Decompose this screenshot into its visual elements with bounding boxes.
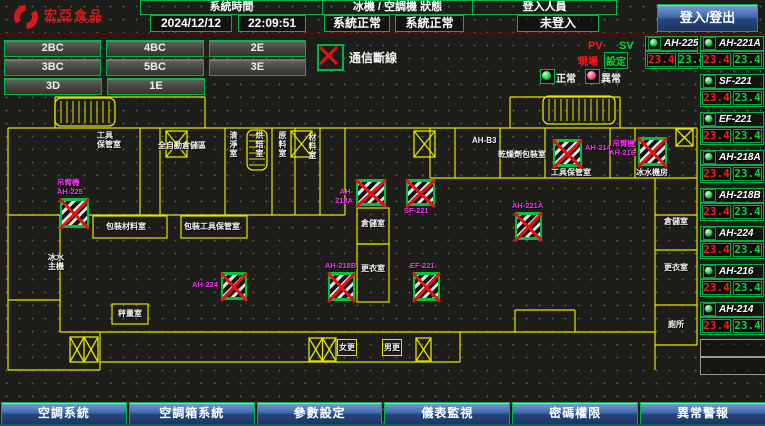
comm-offline-label: 通信斷線 — [349, 49, 397, 66]
floor-button-1e[interactable]: 1E — [107, 78, 205, 95]
equipment-ah-218a[interactable]: AH-218A — [700, 150, 764, 165]
ahu-unit-ah-216[interactable] — [638, 137, 667, 166]
status-led-icon — [703, 189, 716, 202]
floor-button-2e[interactable]: 2E — [209, 40, 306, 57]
status-led-icon — [703, 303, 716, 316]
equipment-values-ah-224: 23.423.4 — [700, 241, 764, 259]
equipment-empty-slot — [700, 339, 765, 357]
ahu-label-ah-225: 吊臂機 AH-225 — [57, 179, 83, 196]
alarm-x-icon — [404, 178, 437, 209]
equipment-values-ah-216: 23.423.4 — [700, 279, 764, 297]
nav-meter-monitor[interactable]: 儀表監視 — [384, 402, 510, 425]
abnormal-led-icon — [585, 69, 600, 84]
ahu-label-ah-221a: AH-221A — [512, 202, 543, 211]
equipment-values-ef-221: 23.423.4 — [700, 127, 764, 145]
room-label: 乾燥劑包裝室 — [498, 150, 546, 159]
room-label: 冰水 主機 — [48, 253, 64, 271]
ahu-label-ah-218a: AH-218A — [325, 188, 353, 205]
pv-value: 23.4 — [702, 281, 731, 295]
room-label: 廁所 — [668, 320, 684, 329]
sv-value: 23.4 — [733, 167, 762, 181]
alarm-x-icon — [354, 178, 388, 209]
ahu-unit-ah-218b[interactable] — [328, 272, 355, 301]
company-name-en: HUNYA FOODS — [46, 19, 101, 25]
chiller-status: 系統正常 — [324, 15, 390, 32]
alarm-x-icon — [58, 197, 91, 231]
sv-legend-label: SV — [619, 40, 634, 52]
sv-value: 23.4 — [733, 319, 762, 333]
pv-value: 23.4 — [702, 243, 731, 257]
comm-offline-x-icon — [317, 44, 344, 71]
ahu-label-ah-216: 吊臂機 AH-216 — [607, 140, 635, 157]
room-outline — [357, 244, 389, 302]
pv-value: 23.4 — [702, 53, 731, 67]
equipment-values-ah-214: 23.423.4 — [700, 317, 764, 335]
ahu-label-sf-221: SF-221 — [404, 207, 429, 216]
equipment-name: AH-216 — [719, 266, 753, 277]
room-label: 全自動倉儲區 — [158, 141, 206, 150]
equipment-name: AH-214 — [719, 304, 753, 315]
room-label: 倉儲室 — [664, 217, 688, 226]
equipment-ah-218b[interactable]: AH-218B — [700, 188, 764, 203]
pv-value: 23.4 — [647, 53, 676, 67]
room-label: 材料室 — [308, 133, 317, 160]
ahu-label-ah-218b: AH-218B — [325, 262, 356, 271]
status-led-icon — [703, 227, 716, 240]
equipment-ah-214[interactable]: AH-214 — [700, 302, 764, 317]
hmi-screen: 工具 保管室全自動倉儲區清淨室烘焙室原料室材料室AH-B3乾燥劑包裝室工具保管室… — [0, 0, 765, 426]
ahu-unit-ah-214[interactable] — [553, 139, 582, 167]
ahu-unit-ah-218a[interactable] — [356, 179, 386, 206]
room-label: 更衣室 — [361, 264, 385, 273]
equipment-ah-221a[interactable]: AH-221A — [700, 36, 764, 51]
nav-password-auth[interactable]: 密碼權限 — [512, 402, 638, 425]
normal-led-icon — [540, 69, 555, 84]
door-x-icon — [676, 129, 693, 146]
equipment-name: AH-225 — [664, 38, 698, 49]
equipment-values-ah-218a: 23.423.4 — [700, 165, 764, 183]
floor-button-row: 2BC4BC2E — [4, 40, 306, 57]
pv-value: 23.4 — [702, 319, 731, 333]
floor-button-4bc[interactable]: 4BC — [106, 40, 203, 57]
status-led-icon — [648, 37, 661, 50]
ahu-unit-ah-221a[interactable] — [515, 212, 542, 240]
equipment-name: EF-221 — [719, 114, 752, 125]
status-led-icon — [703, 37, 716, 50]
sv-sub-label: 設定 — [604, 52, 628, 69]
equipment-name: AH-218A — [719, 152, 761, 163]
nav-param-settings[interactable]: 參數設定 — [257, 402, 383, 425]
room-label: 女更 — [337, 339, 357, 356]
system-clock: 22:09:51 — [238, 15, 306, 32]
stairs-icon — [543, 96, 615, 124]
floor-button-3d[interactable]: 3D — [4, 78, 102, 95]
equipment-sf-221[interactable]: SF-221 — [700, 74, 764, 89]
equipment-name: SF-221 — [719, 76, 752, 87]
room-label: 烘焙室 — [255, 131, 264, 158]
stairs-icon — [55, 98, 115, 126]
status-led-icon — [703, 113, 716, 126]
floor-button-row: 3BC5BC3E — [4, 59, 306, 76]
room-label: 清淨室 — [229, 131, 238, 158]
ahu-unit-sf-221[interactable] — [406, 179, 435, 206]
equipment-values-ah-221a: 23.423.4 — [700, 51, 764, 69]
login-logout-button[interactable]: 登入/登出 — [657, 4, 758, 32]
status-led-icon — [703, 75, 716, 88]
room-label: AH-B3 — [472, 136, 496, 145]
ahu-label-ef-221: EF-221 — [410, 262, 435, 271]
nav-ahu-box-system[interactable]: 空調箱系統 — [129, 402, 255, 425]
room-label: 男更 — [382, 339, 402, 356]
equipment-ah-216[interactable]: AH-216 — [700, 264, 764, 279]
top-status-bar: 宏亞食品 HUNYA FOODS 系統時間 2024/12/12 22:09:5… — [0, 0, 765, 35]
sv-value: 23.4 — [733, 243, 762, 257]
status-led-icon — [703, 151, 716, 164]
equipment-values-ah-218b: 23.423.4 — [700, 203, 764, 221]
pv-legend-label: PV — [588, 40, 603, 52]
door-x-icon — [70, 337, 98, 362]
ahu-unit-ah-224[interactable] — [221, 272, 247, 300]
room-label: 原料室 — [278, 131, 287, 158]
room-label: 包裝材料室 — [106, 222, 146, 231]
sv-value: 23.4 — [733, 205, 762, 219]
floor-button-2bc[interactable]: 2BC — [4, 40, 101, 57]
room-label: 包裝工具保管室 — [184, 222, 240, 231]
alarm-x-icon — [411, 271, 442, 304]
ahu-label-ah-224: AH-224 — [190, 281, 218, 290]
nav-alarm[interactable]: 異常警報 — [640, 402, 765, 425]
door-x-icon — [309, 338, 336, 361]
alarm-x-icon — [219, 271, 249, 303]
door-x-icon — [414, 131, 435, 157]
door-x-icon — [416, 338, 431, 361]
floor-button-3e[interactable]: 3E — [209, 59, 306, 76]
sv-value: 23.4 — [733, 53, 762, 67]
system-date: 2024/12/12 — [150, 15, 232, 32]
floor-button-row: 3D1E — [4, 78, 306, 95]
equipment-values-ah-225: 23.423.4 — [645, 51, 698, 69]
equipment-empty-slot — [700, 357, 765, 375]
hunya-logo-icon — [12, 3, 40, 31]
status-led-icon — [703, 265, 716, 278]
room-label: 工具 保管室 — [97, 131, 121, 149]
ahu-unit-ah-225[interactable] — [60, 198, 89, 228]
alarm-x-icon — [551, 138, 584, 170]
pv-sub-label: 現場 — [578, 53, 598, 68]
system-time-label: 系統時間 — [140, 0, 323, 15]
equipment-ah-224[interactable]: AH-224 — [700, 226, 764, 241]
room-label: 冰水機房 — [636, 168, 668, 177]
floor-button-5bc[interactable]: 5BC — [106, 59, 203, 76]
machine-status-label: 冰機 / 空調機 狀態 — [322, 0, 473, 15]
nav-ac-system[interactable]: 空調系統 — [1, 402, 127, 425]
equipment-ah-225[interactable]: AH-225 — [645, 36, 698, 51]
equipment-values-sf-221: 23.423.4 — [700, 89, 764, 107]
abnormal-legend-label: 異常 — [601, 70, 621, 85]
sv-value: 23.4 — [733, 129, 762, 143]
equipment-name: AH-221A — [719, 38, 761, 49]
equipment-ef-221[interactable]: EF-221 — [700, 112, 764, 127]
floor-selector: 2BC4BC2E3BC5BC3E3D1E — [4, 40, 306, 97]
alarm-x-icon — [326, 271, 357, 304]
pv-value: 23.4 — [702, 205, 731, 219]
sv-value: 23.4 — [733, 91, 762, 105]
ahu-unit-ef-221[interactable] — [413, 272, 440, 301]
pv-value: 23.4 — [702, 129, 731, 143]
pv-value: 23.4 — [702, 91, 731, 105]
bottom-nav-bar: 空調系統空調箱系統參數設定儀表監視密碼權限異常警報 — [0, 402, 765, 424]
ahu-status: 系統正常 — [395, 15, 464, 32]
room-label: 倉儲室 — [361, 219, 385, 228]
pv-value: 23.4 — [702, 167, 731, 181]
room-label: 秤量室 — [118, 309, 142, 318]
equipment-name: AH-218B — [719, 190, 761, 201]
room-label: 更衣室 — [664, 263, 688, 272]
normal-legend-label: 正常 — [556, 70, 576, 85]
login-user-label: 登入人員 — [472, 0, 617, 15]
alarm-x-icon — [636, 136, 669, 169]
login-status: 未登入 — [517, 15, 599, 32]
sv-value: 23.4 — [733, 281, 762, 295]
equipment-name: AH-224 — [719, 228, 753, 239]
floor-button-3bc[interactable]: 3BC — [4, 59, 101, 76]
alarm-x-icon — [513, 211, 544, 243]
